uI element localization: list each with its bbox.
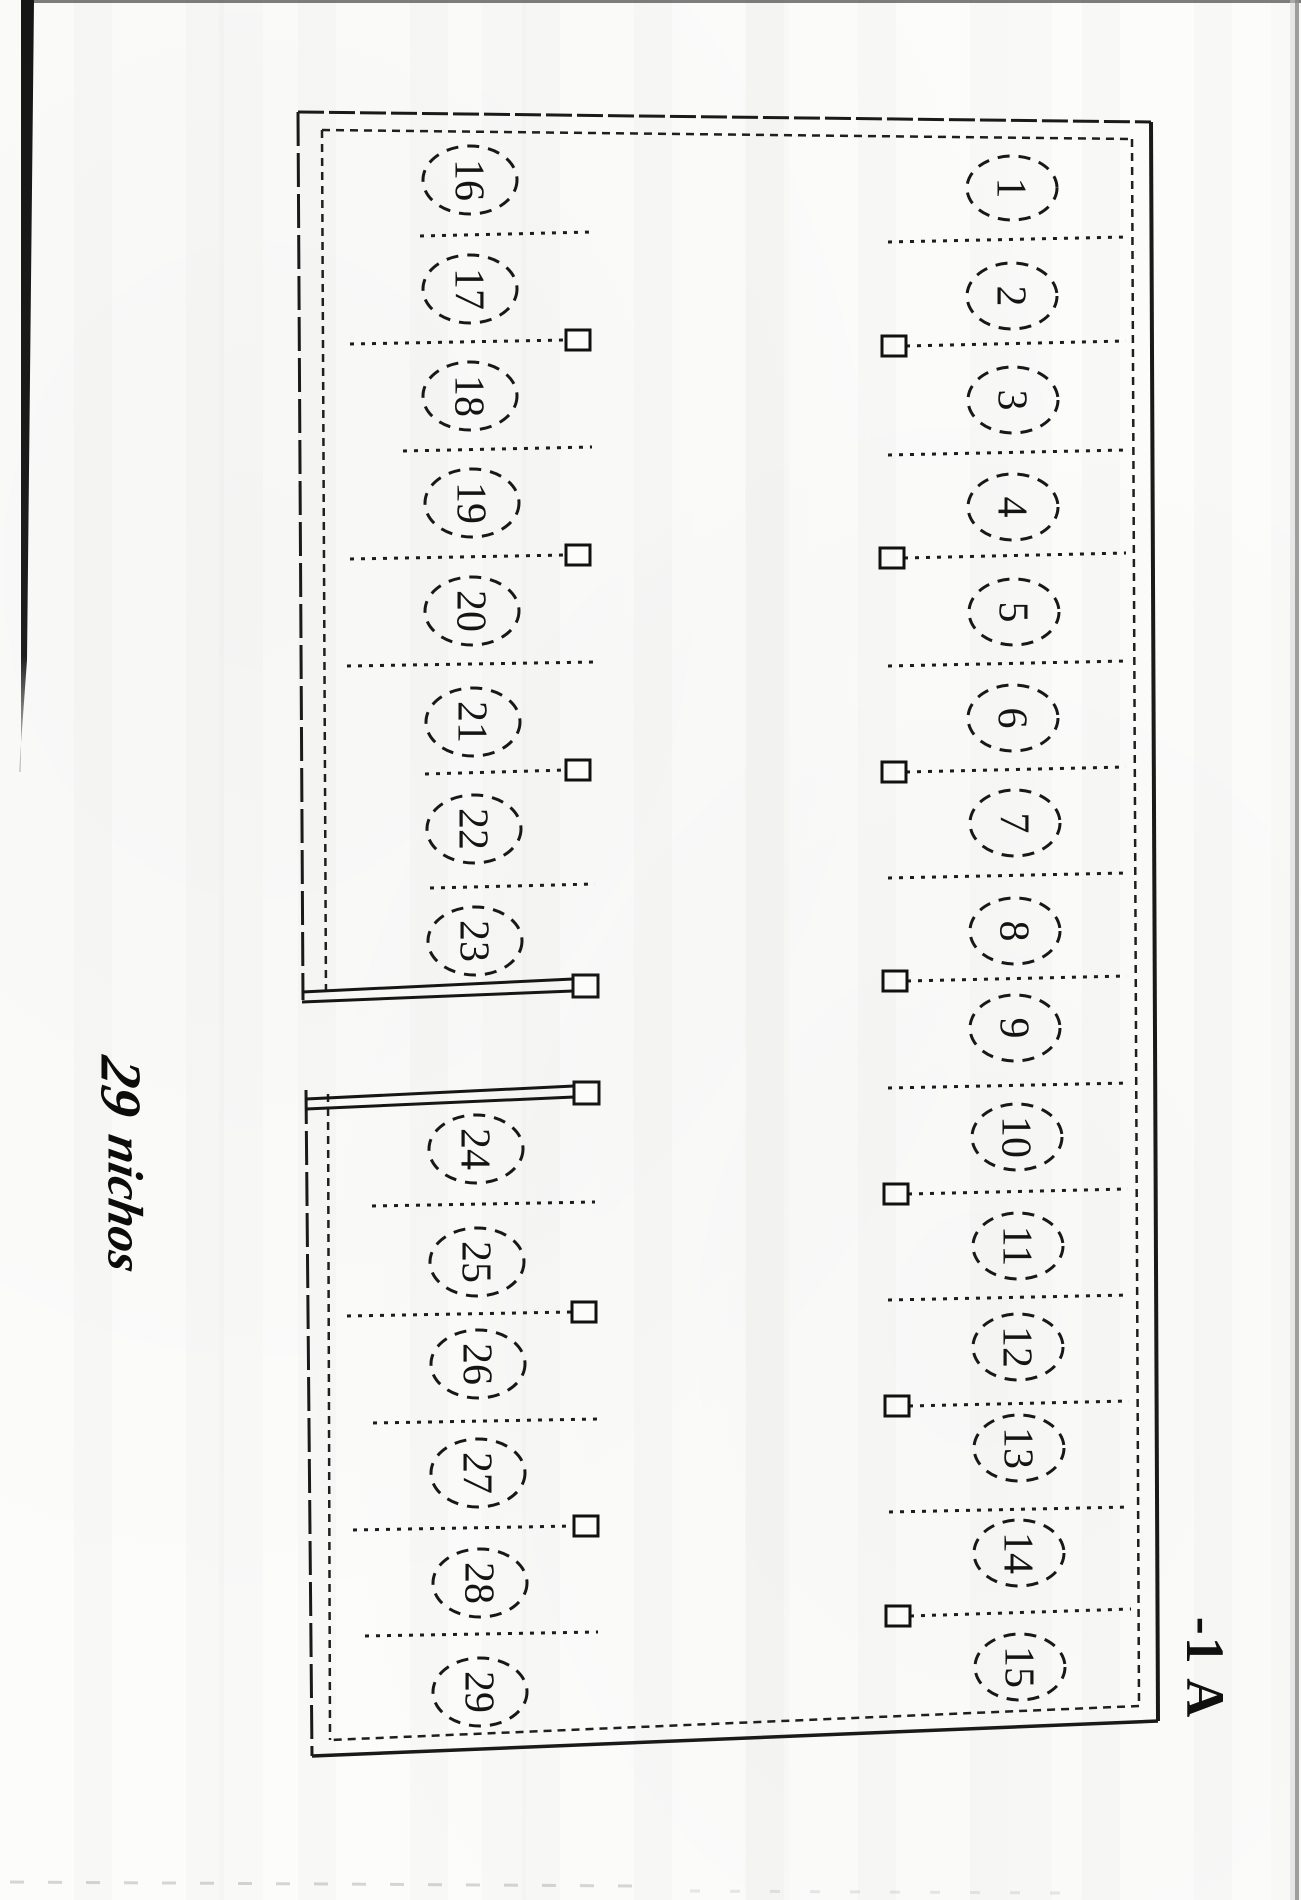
stall-divider [373, 1419, 597, 1423]
floor-plan-scan: 1 2 3 4 5 6 7 8 9 10 11 12 13 14 15 16 1… [0, 0, 1301, 1900]
stall: 17 [423, 255, 517, 323]
stall-number: 9 [990, 1018, 1036, 1039]
stalls-left-upper: 16 17 18 19 20 21 22 23 [423, 146, 522, 975]
stall-number: 1 [987, 178, 1033, 199]
pillar-marker [886, 1606, 910, 1626]
pillar-marker [573, 975, 598, 997]
stall-number: 3 [988, 390, 1034, 411]
stall-number: 24 [451, 1128, 497, 1170]
stall: 27 [431, 1439, 525, 1507]
stall: 24 [429, 1115, 523, 1183]
pillar-marker [885, 1396, 909, 1416]
stall: 29 [433, 1658, 527, 1726]
stall: 28 [433, 1549, 527, 1617]
stall-number: 22 [449, 808, 495, 850]
stall-divider [907, 976, 1127, 981]
stall: 3 [968, 367, 1058, 433]
page-edge-line [1295, 0, 1299, 1900]
stall: 1 [967, 156, 1057, 220]
pillar-markers-left [566, 330, 598, 1536]
stall-divider [365, 1632, 598, 1636]
stall: 23 [428, 907, 522, 975]
stalls-right: 1 2 3 4 5 6 7 8 9 10 11 12 13 14 15 [967, 156, 1065, 1700]
stall: 2 [967, 263, 1057, 329]
stall-number: 6 [988, 708, 1034, 729]
stall: 19 [425, 469, 519, 537]
stall-number: 18 [445, 375, 491, 417]
pillar-marker [574, 1082, 599, 1104]
scanned-page: 1 2 3 4 5 6 7 8 9 10 11 12 13 14 15 16 1… [0, 0, 1301, 1900]
stall-number: 21 [448, 701, 494, 743]
stall-number: 25 [452, 1241, 498, 1283]
stall-divider [350, 555, 566, 559]
pillar-marker [882, 762, 906, 782]
stall-divider [888, 1295, 1128, 1300]
pillar-marker [566, 545, 590, 565]
stall-number: 19 [447, 482, 493, 524]
stall-number: 14 [994, 1532, 1040, 1574]
stall-divider [353, 1526, 574, 1530]
block-label: -1 A [1175, 1617, 1235, 1720]
stall: 4 [968, 474, 1058, 540]
stall-divider [888, 661, 1126, 666]
stall-divider [425, 770, 566, 774]
stall-number: 2 [987, 286, 1033, 307]
stall-number: 15 [995, 1646, 1041, 1688]
stall-divider [889, 1507, 1130, 1512]
stall: 15 [975, 1634, 1065, 1700]
stall: 22 [427, 795, 521, 863]
stall: 7 [970, 790, 1060, 856]
stall-number: 27 [453, 1452, 499, 1494]
stall-divider [888, 237, 1126, 242]
stall-divider [347, 662, 595, 666]
stall: 5 [969, 579, 1059, 645]
stall: 11 [973, 1213, 1063, 1279]
bottom-scan-noise [10, 1882, 640, 1886]
stall: 12 [973, 1314, 1063, 1380]
stall-divider [350, 340, 566, 344]
stall-number: 4 [988, 497, 1034, 518]
stall-divider [906, 341, 1126, 346]
pillar-marker [574, 1516, 598, 1536]
stall-divider [910, 1609, 1131, 1616]
pillar-marker [880, 548, 904, 568]
stall-number: 17 [445, 268, 491, 310]
scan-spine-shadow [19, 0, 34, 772]
stall-number: 8 [990, 921, 1036, 942]
block-wall-upper [302, 975, 598, 1002]
handwritten-note-line2: nichos [98, 1131, 154, 1277]
stall-number: 29 [455, 1671, 501, 1713]
pillar-marker [566, 760, 590, 780]
pillar-marker [884, 1184, 908, 1204]
stall-divider [888, 450, 1126, 455]
stall-divider [888, 873, 1126, 878]
stall: 14 [974, 1520, 1064, 1586]
stall-number: 16 [445, 159, 491, 201]
stall: 25 [430, 1228, 524, 1296]
stall-number: 5 [989, 602, 1035, 623]
handwritten-note-line1: 29 [89, 1051, 154, 1121]
stall: 20 [425, 577, 519, 645]
block-wall-lower [306, 1082, 599, 1109]
stall-number: 28 [455, 1562, 501, 1604]
stall-number: 26 [453, 1343, 499, 1385]
stall: 10 [972, 1104, 1062, 1170]
pillar-markers-right [880, 336, 910, 1626]
stall-number: 7 [990, 813, 1036, 834]
stall: 21 [426, 688, 520, 756]
stall-divider [403, 447, 592, 451]
stall: 9 [970, 995, 1060, 1061]
page-edge-shade [1290, 0, 1295, 1900]
stall: 16 [423, 146, 517, 214]
stall-divider [904, 553, 1126, 558]
stall-number: 23 [450, 920, 496, 962]
stall: 6 [968, 685, 1058, 751]
stall-number: 13 [994, 1427, 1040, 1469]
stall-number: 10 [992, 1116, 1038, 1158]
pillar-marker [566, 330, 590, 350]
scanner-top-edge-shadow [25, 0, 1301, 3]
pillar-marker [883, 971, 907, 991]
stall-number: 11 [993, 1226, 1039, 1266]
bottom-scan-noise [690, 1891, 1060, 1893]
stall-divider [906, 767, 1126, 772]
stall: 8 [970, 898, 1060, 964]
stall-divider [430, 884, 595, 888]
pillar-marker [572, 1302, 596, 1322]
stall-number: 12 [993, 1326, 1039, 1368]
stall-divider [420, 232, 592, 236]
stall-divider [888, 1083, 1128, 1088]
stall-number: 20 [447, 590, 493, 632]
stall-divider [347, 1312, 572, 1316]
pillar-marker [882, 336, 906, 356]
stall: 26 [431, 1330, 525, 1398]
stall-divider [908, 1189, 1128, 1194]
stall: 18 [423, 362, 517, 430]
stall-divider [372, 1202, 595, 1206]
stall-divider [909, 1401, 1129, 1406]
stall: 13 [974, 1415, 1064, 1481]
